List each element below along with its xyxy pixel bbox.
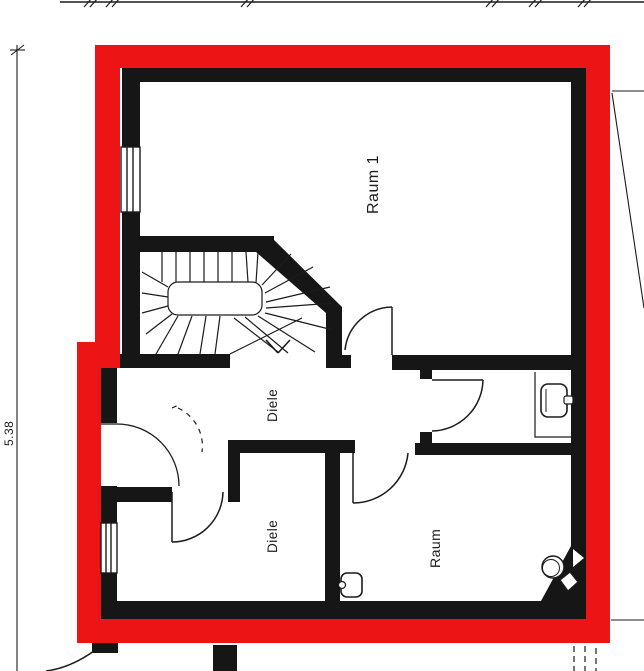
room1-label: Raum 1	[365, 155, 382, 214]
sink-tap	[564, 396, 573, 404]
door-room1	[345, 307, 392, 355]
floor-plan-page: Raum 1 Diele Diele Raum 5.38	[0, 0, 644, 671]
dimension-left-value: 5.38	[2, 421, 16, 446]
stub-bottom-mid	[213, 645, 237, 671]
door-swing-dashed	[172, 404, 202, 452]
black-walls	[101, 68, 586, 619]
door-bathroom	[432, 380, 483, 431]
wall-hall-room2	[415, 443, 571, 455]
wall-bottom	[101, 601, 586, 619]
stair-wall-diagonal	[256, 236, 342, 368]
stub-bottom-left	[92, 643, 118, 653]
dimension-line-top	[60, 0, 644, 7]
red-outline-wall	[77, 45, 610, 643]
wall-room1-bath-top	[392, 355, 571, 370]
door-hall-lower	[172, 492, 223, 542]
window-left-lower	[101, 523, 117, 573]
stair-wall-foot	[326, 355, 351, 368]
wall-right	[571, 82, 586, 538]
wall-diele-raum-vertical	[325, 448, 340, 601]
window-left-upper	[121, 147, 140, 212]
wall-left-lower-b	[101, 486, 117, 523]
dashed-lines-bottom-right	[574, 646, 596, 671]
door-exterior-bottom	[46, 651, 94, 671]
stair-wall-top	[125, 236, 274, 252]
hall-upper-label: Diele	[265, 389, 280, 422]
wall-left-lower-a	[101, 368, 117, 423]
neighbor-lines-right	[611, 91, 644, 620]
wall-lowerhall-top	[117, 487, 172, 502]
wall-left-upper-a	[122, 82, 140, 147]
small-sink-tap	[339, 582, 346, 589]
bath-door-jamb-top	[420, 370, 432, 379]
fixtures	[339, 372, 579, 597]
stair-inner-rail	[168, 282, 262, 315]
wall-left-lower-c	[101, 573, 117, 601]
dimension-ticks-top	[84, 0, 592, 7]
door-entrance-left	[101, 419, 179, 486]
room2-small-sink	[339, 573, 363, 597]
floor-plan-drawing: Raum 1 Diele Diele Raum 5.38	[0, 0, 644, 671]
dimension-line-left	[10, 45, 25, 671]
cutoff-wall-stubs	[92, 643, 237, 671]
room2-label: Raum	[427, 529, 443, 568]
stair-wall-bottom	[120, 354, 230, 368]
wall-left-upper-b	[122, 212, 140, 368]
door-room2	[353, 453, 408, 503]
bathroom-sink	[541, 384, 573, 417]
wall-top	[122, 68, 586, 82]
wall-hall-mid-stub	[228, 440, 240, 502]
staircase	[142, 252, 334, 354]
hall-lower-label: Diele	[265, 520, 280, 553]
